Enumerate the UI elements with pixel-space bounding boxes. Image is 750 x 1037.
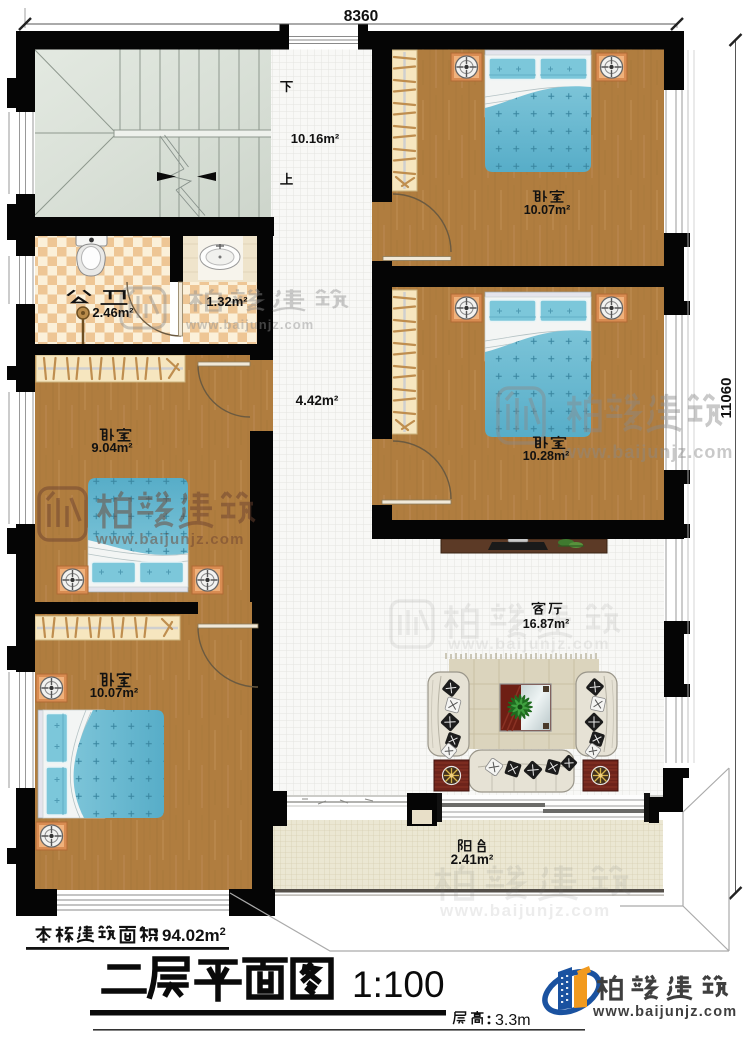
svg-text:16.87m²: 16.87m²: [523, 617, 570, 631]
svg-text:3.3m: 3.3m: [495, 1012, 531, 1029]
svg-text:4.42m²: 4.42m²: [296, 393, 339, 408]
svg-text:94.02m2: 94.02m2: [162, 926, 226, 945]
svg-text:www.baijunjz.com: www.baijunjz.com: [447, 636, 610, 653]
svg-text:2.46m²: 2.46m²: [92, 305, 134, 320]
svg-text:www.baijunjz.com: www.baijunjz.com: [592, 1004, 737, 1020]
svg-text:1:100: 1:100: [352, 964, 445, 1005]
svg-text:www.baijunjz.com: www.baijunjz.com: [561, 442, 733, 462]
svg-text:10.07m²: 10.07m²: [524, 203, 571, 217]
svg-text:8360: 8360: [344, 8, 378, 25]
svg-text:www.baijunjz.com: www.baijunjz.com: [185, 317, 314, 332]
svg-text:2.41m²: 2.41m²: [451, 852, 494, 867]
svg-text:10.16m²: 10.16m²: [291, 131, 340, 146]
svg-text:10.07m²: 10.07m²: [90, 685, 139, 700]
svg-text:1.32m²: 1.32m²: [206, 294, 248, 309]
svg-text:www.baijunjz.com: www.baijunjz.com: [95, 531, 245, 548]
svg-text:www.baijunjz.com: www.baijunjz.com: [439, 901, 611, 920]
svg-text:10.28m²: 10.28m²: [523, 449, 570, 463]
svg-text:9.04m²: 9.04m²: [91, 440, 133, 455]
svg-text:11060: 11060: [718, 378, 735, 419]
